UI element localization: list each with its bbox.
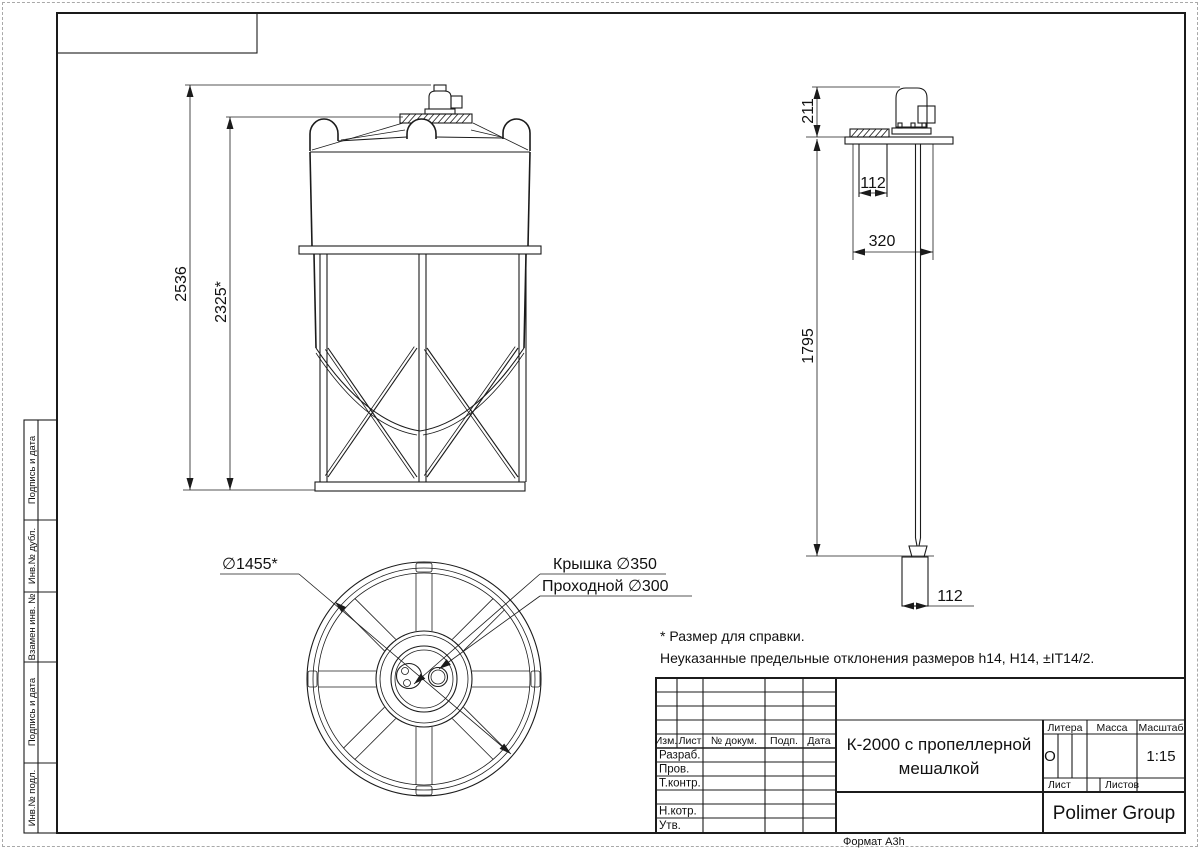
stamp-label-1: Подпись и дата bbox=[27, 435, 38, 504]
propeller bbox=[902, 557, 928, 606]
dim-propeller-width: 112 bbox=[937, 588, 963, 605]
dim-neck-width: 112 bbox=[860, 175, 886, 192]
support-stand bbox=[315, 254, 526, 491]
drawing-notes: * Размер для справки. Неуказанные предел… bbox=[660, 628, 1094, 666]
tb-row-razrab: Разраб. bbox=[659, 750, 700, 762]
tank-body bbox=[299, 152, 541, 435]
drawing-canvas: Подпись и дата Инв.№ дубл. Взамен инв. №… bbox=[0, 0, 1200, 849]
tb-massa-label: Масса bbox=[1096, 722, 1127, 734]
tb-listov-label: Листов bbox=[1105, 779, 1140, 791]
side-view-mixer: 211 1795 112 320 112 bbox=[800, 87, 974, 610]
tb-masshtab-label: Масштаб bbox=[1139, 722, 1184, 734]
stamp-label-2: Инв.№ дубл. bbox=[27, 528, 38, 584]
tb-row-nkontr: Н.котр. bbox=[659, 806, 697, 818]
tb-title-line1: К-2000 с пропеллерной bbox=[847, 735, 1032, 754]
dim-motor-height: 211 bbox=[800, 98, 817, 124]
front-cover-plate bbox=[400, 114, 472, 123]
front-motor bbox=[425, 85, 462, 114]
dim-tank-height: 2325* bbox=[213, 281, 230, 323]
stand-base-rail bbox=[315, 482, 525, 491]
note-tolerances: Неуказанные предельные отклонения размер… bbox=[660, 650, 1094, 666]
mixer-shaft bbox=[902, 144, 928, 606]
tb-title-line2: мешалкой bbox=[899, 759, 980, 778]
top-view-annotations: ∅1455* Крышка ∅350 Проходной ∅300 bbox=[220, 556, 692, 754]
dim-shaft-length: 1795 bbox=[800, 328, 817, 364]
tb-list-label: Лист bbox=[1048, 779, 1071, 791]
stamp-label-3: Взамен инв. № bbox=[27, 594, 38, 661]
side-motor bbox=[892, 88, 935, 134]
tb-row-prov: Пров. bbox=[659, 764, 689, 776]
port-leader-label: Проходной ∅300 bbox=[542, 578, 669, 595]
tb-litera-value: О bbox=[1044, 748, 1056, 765]
tb-col-data: Дата bbox=[807, 735, 830, 747]
dim-diameter-label: ∅1455* bbox=[222, 556, 278, 573]
tb-company: Polimer Group bbox=[1053, 803, 1176, 824]
sheet-frame bbox=[57, 13, 1185, 833]
dim-plate-width: 320 bbox=[869, 233, 896, 250]
tb-col-doc: № докум. bbox=[711, 735, 757, 747]
top-view-tank: ∅1455* Крышка ∅350 Проходной ∅300 bbox=[220, 556, 692, 796]
format-label: Формат А3h bbox=[843, 836, 905, 848]
title-block: Изм. Лист № докум. Подп. Дата Разраб. Пр… bbox=[655, 678, 1185, 833]
cover-leader-label: Крышка ∅350 bbox=[553, 556, 657, 573]
tb-col-podp: Подп. bbox=[770, 735, 798, 747]
tb-col-izm: Изм. bbox=[655, 735, 678, 747]
support-ring bbox=[299, 246, 541, 254]
stamp-label-4: Подпись и дата bbox=[27, 677, 38, 746]
left-stamp-strip: Подпись и дата Инв.№ дубл. Взамен инв. №… bbox=[24, 420, 57, 833]
tb-scale-value: 1:15 bbox=[1146, 748, 1175, 765]
tb-row-tkontr: Т.контр. bbox=[659, 778, 701, 790]
dim-total-height: 2536 bbox=[173, 266, 190, 302]
tb-row-utv: Утв. bbox=[659, 820, 681, 832]
stamp-label-5: Инв.№ подл. bbox=[27, 770, 38, 827]
front-view-dimensions: 2536 2325* bbox=[173, 85, 431, 490]
tb-litera-label: Литера bbox=[1048, 722, 1083, 734]
front-view-tank: 2536 2325* bbox=[173, 85, 541, 491]
note-reference-size: * Размер для справки. bbox=[660, 628, 805, 644]
tb-col-list: Лист bbox=[679, 735, 702, 747]
tank-dome bbox=[310, 119, 530, 152]
top-left-stamp-box bbox=[57, 13, 257, 53]
drawing-sheet: Подпись и дата Инв.№ дубл. Взамен инв. №… bbox=[0, 0, 1200, 849]
